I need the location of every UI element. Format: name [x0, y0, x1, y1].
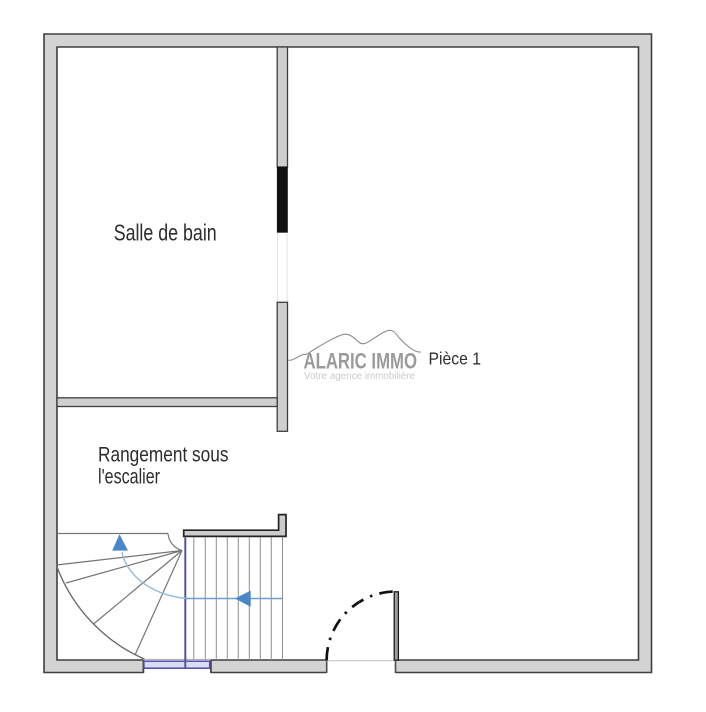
- svg-text:Pièce 1: Pièce 1: [429, 348, 482, 368]
- svg-text:Rangement sous: Rangement sous: [98, 444, 229, 467]
- svg-text:Salle de bain: Salle de bain: [114, 219, 217, 245]
- svg-text:l'escalier: l'escalier: [98, 466, 160, 489]
- svg-text:Votre agence immobilière: Votre agence immobilière: [304, 371, 416, 382]
- svg-text:ALARIC IMMO: ALARIC IMMO: [304, 349, 418, 374]
